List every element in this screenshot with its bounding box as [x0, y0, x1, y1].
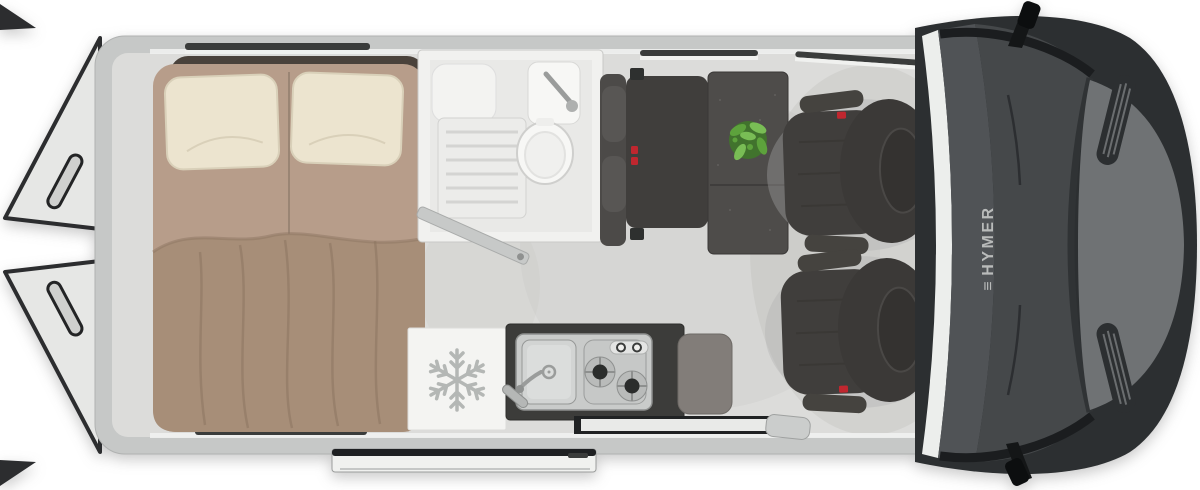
sink-stove-unit [501, 334, 652, 410]
bench-seat [600, 68, 708, 246]
bench-headrest-2 [602, 156, 626, 212]
pillow-left [164, 74, 279, 170]
rear-door-bottom-edge [0, 460, 36, 486]
burner-2 [617, 371, 647, 401]
sliding-door-open [332, 449, 596, 472]
bench-headrest-1 [602, 86, 626, 142]
washbasin [528, 62, 580, 124]
double-bed [153, 56, 425, 432]
entry-bench-cushion [678, 334, 732, 414]
driver-cab: ≡HYMER [915, 0, 1197, 488]
rear-door-top [0, 4, 100, 229]
stove-two-burner [584, 340, 648, 404]
campervan-floorplan: ≡HYMER [0, 0, 1200, 490]
rear-door-bottom [0, 261, 100, 486]
burner-1 [585, 357, 615, 387]
floorplan-drawing: ≡HYMER [0, 0, 1200, 490]
bench-cushion [626, 76, 708, 228]
bathroom-shelf [432, 64, 496, 122]
seatbelt-buckle-2 [631, 157, 638, 165]
pillow-right [290, 72, 403, 166]
rear-door-top-edge [0, 4, 36, 30]
shower-tray [438, 118, 526, 218]
seatbelt-buckle-1 [631, 146, 638, 154]
bathroom [416, 50, 603, 265]
stove-knobs [610, 341, 648, 354]
entry-step [765, 414, 811, 440]
kitchen [408, 324, 732, 430]
